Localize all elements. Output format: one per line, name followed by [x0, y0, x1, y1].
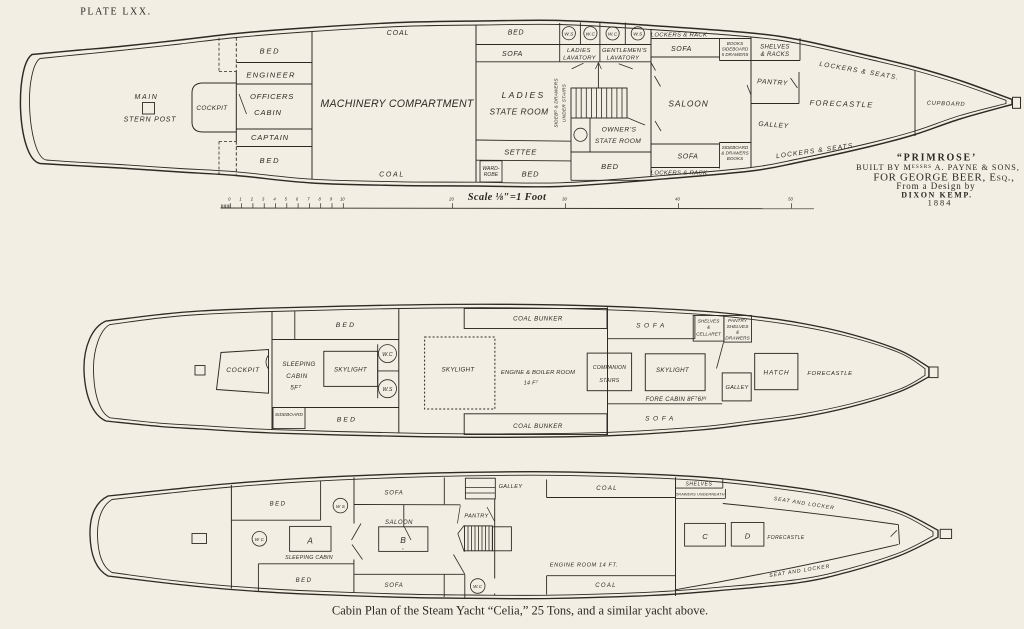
- svg-text:30: 30: [562, 197, 567, 202]
- svg-text:SOFA: SOFA: [384, 583, 403, 589]
- svg-text:SOFA: SOFA: [678, 153, 699, 160]
- svg-text:BED: BED: [336, 322, 357, 329]
- svg-text:W.C: W.C: [608, 32, 618, 38]
- svg-text:GALLEY: GALLEY: [499, 484, 524, 490]
- svg-text:10: 10: [340, 197, 345, 202]
- svg-text:1: 1: [239, 197, 241, 202]
- svg-text:SOFA: SOFA: [502, 51, 523, 58]
- svg-text:STERN POST: STERN POST: [124, 117, 177, 124]
- svg-text:ENGINE & BOILER ROOM: ENGINE & BOILER ROOM: [501, 370, 575, 376]
- svg-text:5 DRAWERS: 5 DRAWERS: [722, 52, 749, 57]
- svg-text:W C: W C: [255, 537, 265, 542]
- svg-text:SLEEPING CABIN: SLEEPING CABIN: [285, 555, 333, 561]
- svg-text:STAIRS: STAIRS: [599, 378, 619, 384]
- svg-text:SIDEBOARD: SIDEBOARD: [275, 412, 304, 417]
- svg-text:COMPANION: COMPANION: [593, 365, 626, 371]
- svg-text:CABIN: CABIN: [254, 108, 282, 117]
- svg-text:DRAWERS UNDERNEATH: DRAWERS UNDERNEATH: [675, 493, 724, 497]
- svg-text:OWNER'S: OWNER'S: [602, 127, 637, 134]
- svg-text:CABIN: CABIN: [286, 373, 307, 380]
- svg-text:BED: BED: [508, 29, 525, 36]
- svg-text:LADIES: LADIES: [502, 90, 546, 100]
- svg-text:From a Design by: From a Design by: [896, 181, 975, 191]
- svg-text:SOFA: SOFA: [384, 490, 403, 496]
- svg-text:SHELVES: SHELVES: [727, 324, 750, 330]
- svg-text:D: D: [745, 532, 751, 541]
- svg-text:Cabin Plan of the Steam Yacht: Cabin Plan of the Steam Yacht “Celia,” 2…: [332, 604, 708, 618]
- svg-text:SHELVES: SHELVES: [698, 319, 721, 325]
- svg-text:DRAWERS: DRAWERS: [725, 336, 750, 342]
- svg-text:BED: BED: [270, 501, 287, 507]
- svg-text:CELLARET: CELLARET: [696, 331, 722, 337]
- svg-text:MAIN: MAIN: [135, 94, 159, 101]
- svg-text:FORECASTLE: FORECASTLE: [767, 535, 805, 541]
- svg-text:BED: BED: [260, 47, 281, 56]
- svg-text:SALOON: SALOON: [668, 98, 708, 108]
- svg-text:SOFA: SOFA: [636, 322, 668, 329]
- svg-text:40: 40: [675, 197, 680, 202]
- svg-text:COAL: COAL: [387, 30, 410, 37]
- svg-text:SOFA: SOFA: [645, 415, 677, 422]
- svg-text:SALOON: SALOON: [385, 520, 413, 526]
- svg-text:COAL: COAL: [596, 486, 618, 492]
- svg-text:UNDER STAIRS: UNDER STAIRS: [561, 83, 566, 122]
- svg-text:&: &: [736, 330, 739, 336]
- svg-text:COAL: COAL: [379, 171, 405, 178]
- svg-text:SKYLIGHT: SKYLIGHT: [441, 366, 475, 373]
- svg-text:LAVATORY: LAVATORY: [607, 55, 641, 61]
- svg-text:W.S: W.S: [564, 31, 574, 37]
- svg-text:SLEEPING: SLEEPING: [282, 361, 315, 368]
- svg-text:PLATE LXX.: PLATE LXX.: [80, 7, 152, 18]
- svg-text:SHELVES: SHELVES: [686, 482, 713, 488]
- svg-text:GALLEY: GALLEY: [726, 385, 750, 391]
- svg-text:HATCH: HATCH: [763, 369, 789, 376]
- svg-text:COAL BUNKER: COAL BUNKER: [513, 315, 563, 322]
- svg-text:W.C: W.C: [586, 31, 596, 37]
- svg-text:BED: BED: [260, 156, 281, 165]
- svg-text:SIDEBD & DRAWERS: SIDEBD & DRAWERS: [553, 78, 558, 128]
- svg-text:SETTEE: SETTEE: [504, 147, 537, 156]
- svg-text:LOCKERS & RACK: LOCKERS & RACK: [651, 32, 708, 38]
- svg-text:BED: BED: [601, 162, 619, 171]
- svg-text:1884: 1884: [928, 199, 953, 208]
- svg-text:COCKPIT: COCKPIT: [226, 367, 260, 374]
- svg-text:LADIES: LADIES: [567, 48, 591, 54]
- svg-text:BED: BED: [337, 417, 358, 424]
- svg-text:Scale ⅛″=1 Foot: Scale ⅛″=1 Foot: [468, 192, 547, 203]
- svg-text:ENGINEER: ENGINEER: [246, 71, 295, 80]
- svg-text:OFFICERS: OFFICERS: [250, 92, 294, 101]
- svg-text:SKYLIGHT: SKYLIGHT: [334, 366, 368, 373]
- svg-text:W.C: W.C: [473, 584, 483, 589]
- svg-text:SKYLIGHT: SKYLIGHT: [656, 367, 690, 374]
- svg-text:B: B: [400, 535, 406, 545]
- svg-text:SIDEBOARD: SIDEBOARD: [722, 145, 749, 150]
- svg-text:CAPTAIN: CAPTAIN: [251, 133, 289, 142]
- svg-text:& DRAWERS: & DRAWERS: [721, 150, 748, 155]
- svg-text:STATE ROOM: STATE ROOM: [595, 138, 641, 145]
- svg-text:COCKPIT: COCKPIT: [196, 105, 228, 112]
- svg-text:LOCKERS & RACK: LOCKERS & RACK: [651, 170, 708, 176]
- svg-text:W.C: W.C: [382, 352, 392, 358]
- svg-text:50: 50: [788, 197, 793, 202]
- svg-text:BOOKS: BOOKS: [727, 41, 744, 46]
- svg-text:PANTRY: PANTRY: [464, 513, 489, 519]
- svg-text:ROBE: ROBE: [484, 172, 499, 178]
- svg-text:“PRIMROSE’: “PRIMROSE’: [897, 153, 977, 164]
- svg-text:MACHINERY COMPARTMENT: MACHINERY COMPARTMENT: [320, 98, 474, 110]
- svg-text:W S: W S: [336, 504, 346, 509]
- svg-text:GENTLEMEN'S: GENTLEMEN'S: [602, 48, 647, 54]
- svg-text:W.S: W.S: [382, 387, 392, 393]
- svg-text:FORECASTLE: FORECASTLE: [807, 371, 852, 377]
- svg-text:WARD-: WARD-: [482, 166, 500, 172]
- svg-text:COAL: COAL: [595, 583, 617, 589]
- svg-text:A: A: [306, 536, 313, 546]
- svg-text:SHELVES: SHELVES: [760, 44, 790, 50]
- svg-text:BED: BED: [296, 578, 313, 584]
- svg-text:20: 20: [448, 197, 454, 202]
- svg-text:LAVATORY: LAVATORY: [563, 55, 597, 61]
- svg-text:&: &: [707, 325, 710, 331]
- svg-text:STATE ROOM: STATE ROOM: [489, 107, 548, 117]
- svg-text:C: C: [702, 532, 708, 541]
- svg-text:BED: BED: [522, 169, 540, 178]
- svg-text:PANTRY: PANTRY: [728, 318, 748, 324]
- svg-text:& RACKS: & RACKS: [761, 52, 790, 58]
- svg-text:FORE CABIN 8FT6IN: FORE CABIN 8FT6IN: [645, 396, 707, 403]
- svg-text:COAL BUNKER: COAL BUNKER: [513, 423, 563, 430]
- svg-text:SIDEBOARD: SIDEBOARD: [722, 46, 749, 51]
- svg-text:ENGINE ROOM 14 FT.: ENGINE ROOM 14 FT.: [550, 562, 618, 568]
- svg-text:SOFA: SOFA: [671, 46, 692, 53]
- svg-text:BOOKS: BOOKS: [727, 156, 744, 161]
- svg-text:W.S: W.S: [633, 32, 643, 38]
